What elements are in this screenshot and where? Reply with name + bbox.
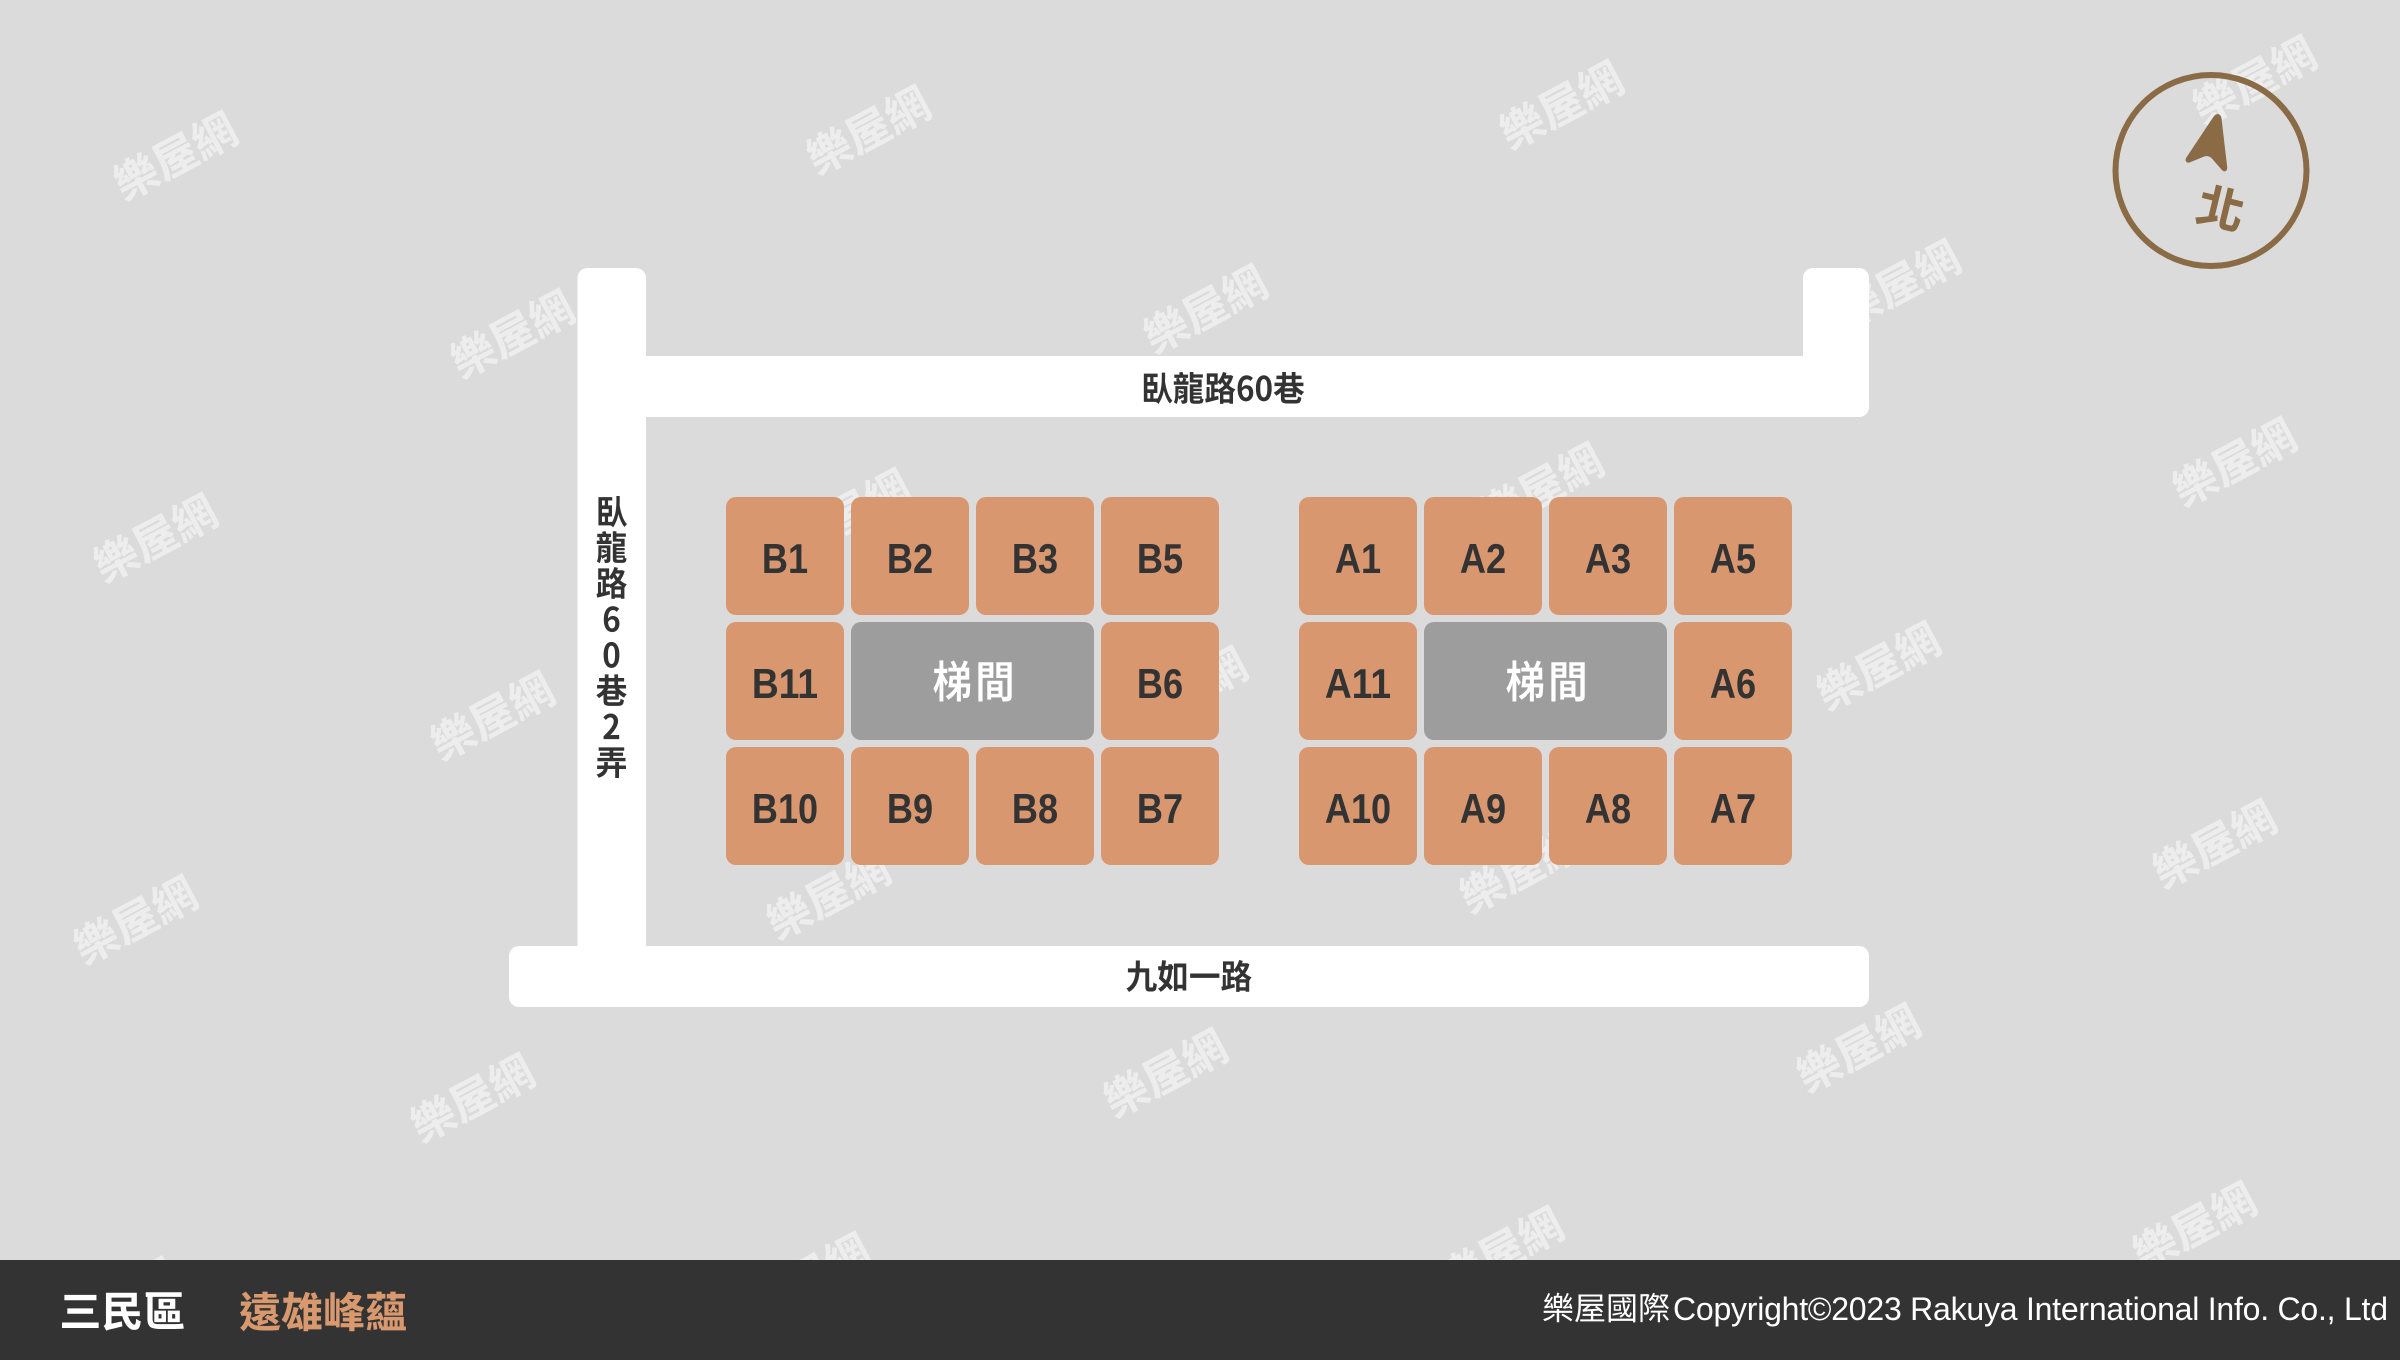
svg-text:B10: B10 [752,785,818,832]
svg-text:A9: A9 [1460,785,1506,832]
svg-text:B7: B7 [1137,785,1183,832]
svg-text:B6: B6 [1137,660,1183,707]
svg-text:A1: A1 [1335,535,1381,582]
svg-text:A10: A10 [1325,785,1391,832]
svg-text:B2: B2 [887,535,933,582]
svg-text:A6: A6 [1710,660,1756,707]
svg-text:A2: A2 [1460,535,1506,582]
svg-text:A7: A7 [1710,785,1756,832]
svg-text:B8: B8 [1012,785,1058,832]
svg-text:B11: B11 [752,660,818,707]
svg-text:B3: B3 [1012,535,1058,582]
svg-text:A3: A3 [1585,535,1631,582]
svg-text:B9: B9 [887,785,933,832]
svg-text:B5: B5 [1137,535,1183,582]
svg-text:B1: B1 [762,535,808,582]
svg-text:Copyright©2023 Rakuya Internat: Copyright©2023 Rakuya International Info… [1673,1291,2388,1327]
svg-text:A8: A8 [1585,785,1631,832]
svg-text:A11: A11 [1325,660,1391,707]
svg-text:A5: A5 [1710,535,1756,582]
